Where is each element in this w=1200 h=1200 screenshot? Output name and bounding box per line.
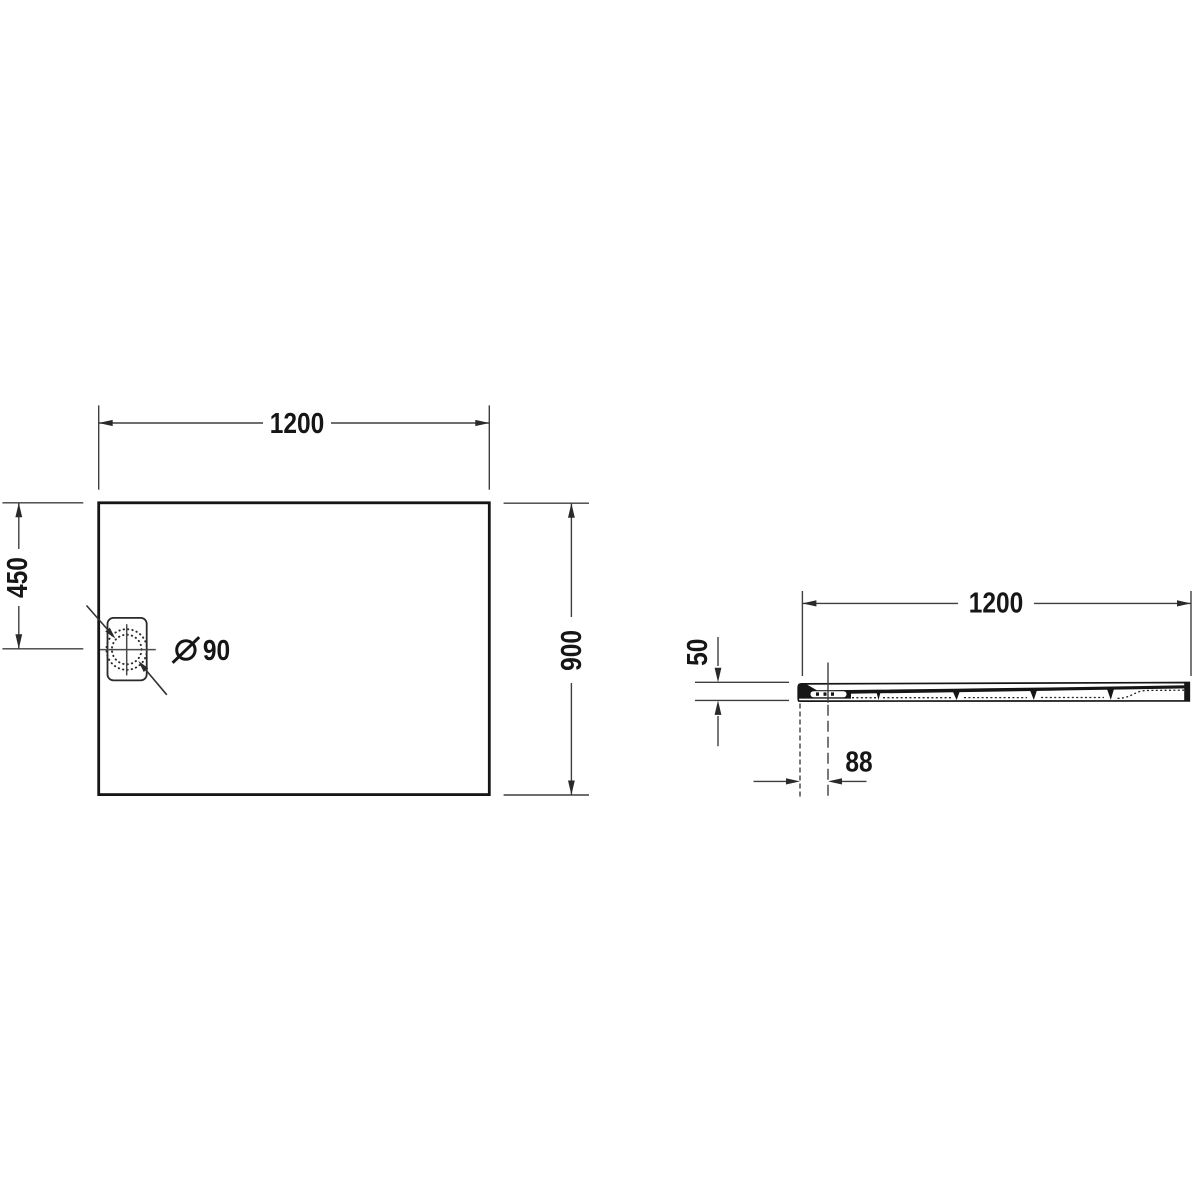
svg-text:1200: 1200 (969, 587, 1023, 619)
svg-text:50: 50 (681, 639, 713, 666)
svg-text:88: 88 (845, 746, 872, 778)
svg-text:900: 900 (555, 630, 587, 671)
svg-text:90: 90 (203, 634, 230, 666)
svg-text:450: 450 (1, 557, 33, 598)
svg-text:1200: 1200 (270, 407, 324, 439)
